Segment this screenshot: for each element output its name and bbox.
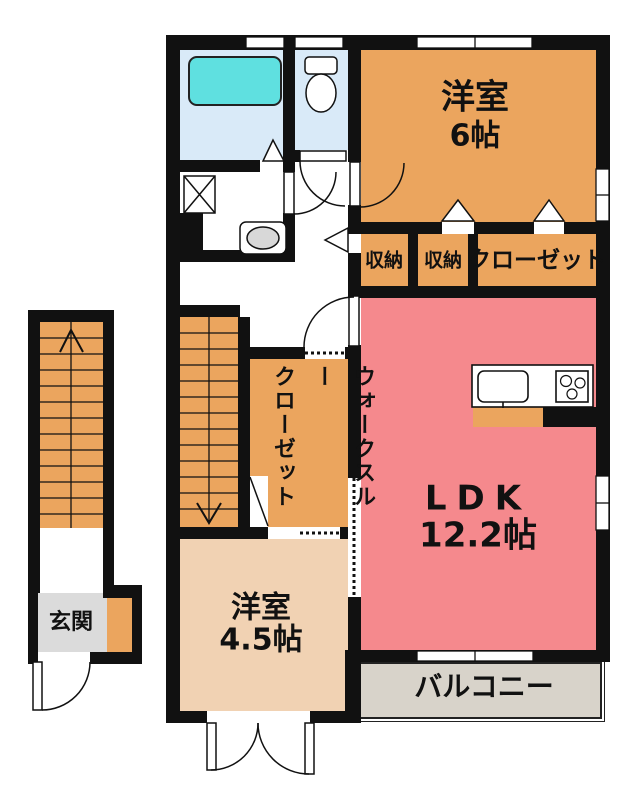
wall bbox=[28, 310, 114, 322]
wtc-hall-opening bbox=[305, 348, 345, 359]
room45-label: 洋室4.5帖 bbox=[219, 593, 302, 658]
kitchen-wall-block bbox=[543, 407, 596, 427]
storage1-label: 収納 bbox=[365, 251, 403, 272]
entrance-step bbox=[107, 598, 132, 652]
wall bbox=[596, 35, 610, 662]
wall bbox=[166, 213, 203, 262]
wall bbox=[283, 150, 300, 162]
ldk-door-leaf bbox=[349, 296, 359, 346]
room-ldk bbox=[361, 298, 596, 650]
double-door-arc-left bbox=[211, 723, 258, 770]
entrance-door-arc bbox=[42, 662, 90, 710]
storage1-door-triangle bbox=[325, 228, 348, 252]
double-door-leaf-right bbox=[305, 723, 314, 774]
wall bbox=[238, 347, 305, 359]
wall bbox=[203, 250, 295, 262]
room6-label: 洋室6帖 bbox=[441, 79, 509, 152]
wall bbox=[340, 527, 361, 539]
wtc-line2: クローゼット bbox=[270, 365, 295, 509]
toilet-room-floor bbox=[295, 50, 348, 150]
washing-machine-icon bbox=[184, 176, 215, 213]
wall bbox=[283, 35, 295, 162]
washroom-door-arc bbox=[294, 172, 336, 214]
wall bbox=[180, 160, 260, 172]
room6-size: 6帖 bbox=[450, 118, 501, 153]
washbasin-bowl bbox=[247, 227, 279, 249]
toilet-door-arc bbox=[300, 161, 345, 206]
wall bbox=[166, 711, 207, 723]
wall bbox=[348, 35, 361, 162]
wall bbox=[90, 652, 142, 664]
ldk-name: LDK bbox=[425, 478, 531, 518]
entrance-label: 玄関 bbox=[49, 611, 93, 635]
wall bbox=[310, 711, 361, 723]
room45-size: 4.5帖 bbox=[219, 623, 302, 658]
double-door-arc-right bbox=[258, 723, 309, 774]
entrance-door-leaf bbox=[33, 662, 42, 710]
washroom-door-leaf bbox=[284, 172, 294, 214]
wtc-line1: ウォークスルー bbox=[310, 365, 375, 509]
ldk-label: LDK12.2帖 bbox=[419, 480, 537, 553]
balcony-label: バルコニー bbox=[414, 672, 553, 702]
wall bbox=[345, 650, 361, 720]
wall bbox=[345, 650, 610, 662]
wall bbox=[28, 310, 40, 593]
kitchen-cabinet bbox=[473, 407, 543, 427]
wall bbox=[348, 286, 610, 298]
room6-door-leaf bbox=[350, 162, 360, 206]
wall bbox=[345, 347, 361, 359]
wall bbox=[408, 234, 418, 286]
closet-label: クローゼット bbox=[468, 249, 606, 274]
double-door-leaf-left bbox=[207, 723, 216, 770]
wall bbox=[348, 597, 361, 650]
wall bbox=[283, 162, 295, 172]
storage2-label: 収納 bbox=[424, 251, 462, 272]
wall bbox=[28, 585, 38, 660]
room6-name: 洋室 bbox=[441, 77, 509, 117]
toilet-door-leaf bbox=[300, 151, 346, 161]
ldk-door-arc bbox=[304, 297, 354, 347]
outdoor-stairs bbox=[40, 322, 103, 528]
wall bbox=[348, 222, 610, 234]
wall bbox=[166, 305, 240, 317]
wall bbox=[166, 35, 610, 50]
floor-plan: 洋室6帖 収納 収納 クローゼット LDK12.2帖 ウォークスルー クローゼッ… bbox=[0, 0, 632, 800]
wall bbox=[166, 35, 180, 723]
wall bbox=[283, 213, 295, 250]
wtc-label: ウォークスルー クローゼット bbox=[262, 365, 382, 527]
washing-machine-cross bbox=[184, 176, 215, 213]
wall bbox=[166, 527, 268, 539]
bathtub-icon bbox=[188, 56, 282, 106]
room45-name: 洋室 bbox=[231, 591, 291, 626]
indoor-stairs bbox=[180, 317, 238, 528]
wall bbox=[103, 310, 114, 585]
wall bbox=[28, 652, 38, 664]
wall bbox=[132, 585, 142, 660]
washing-machine-cross bbox=[184, 176, 215, 213]
ldk-size: 12.2帖 bbox=[419, 515, 537, 555]
